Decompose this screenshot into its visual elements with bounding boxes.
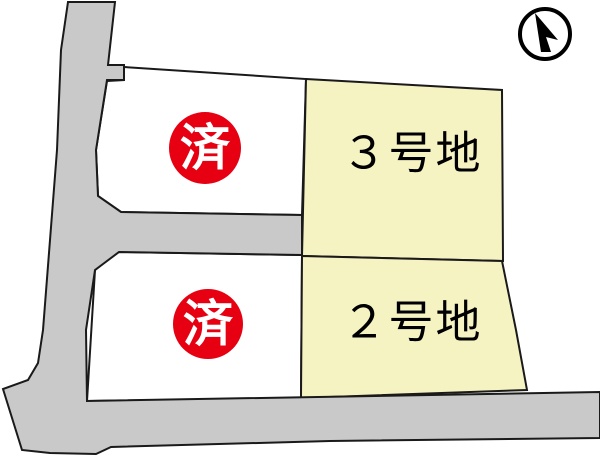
lot-map: 済 済 ３号地 ２号地 — [0, 0, 600, 462]
compass-arrow — [535, 13, 558, 52]
sold-badge-upper-text: 済 — [180, 120, 231, 176]
sold-badge-lower: 済 — [173, 289, 243, 359]
sold-badge-upper: 済 — [169, 112, 241, 184]
sold-badge-lower-text: 済 — [183, 296, 234, 352]
plot-3-label: ３号地 — [341, 128, 482, 179]
lot-map-page: 済 済 ３号地 ２号地 — [0, 0, 600, 462]
compass-north-icon — [520, 9, 570, 59]
plot-2-label: ２号地 — [341, 297, 482, 348]
